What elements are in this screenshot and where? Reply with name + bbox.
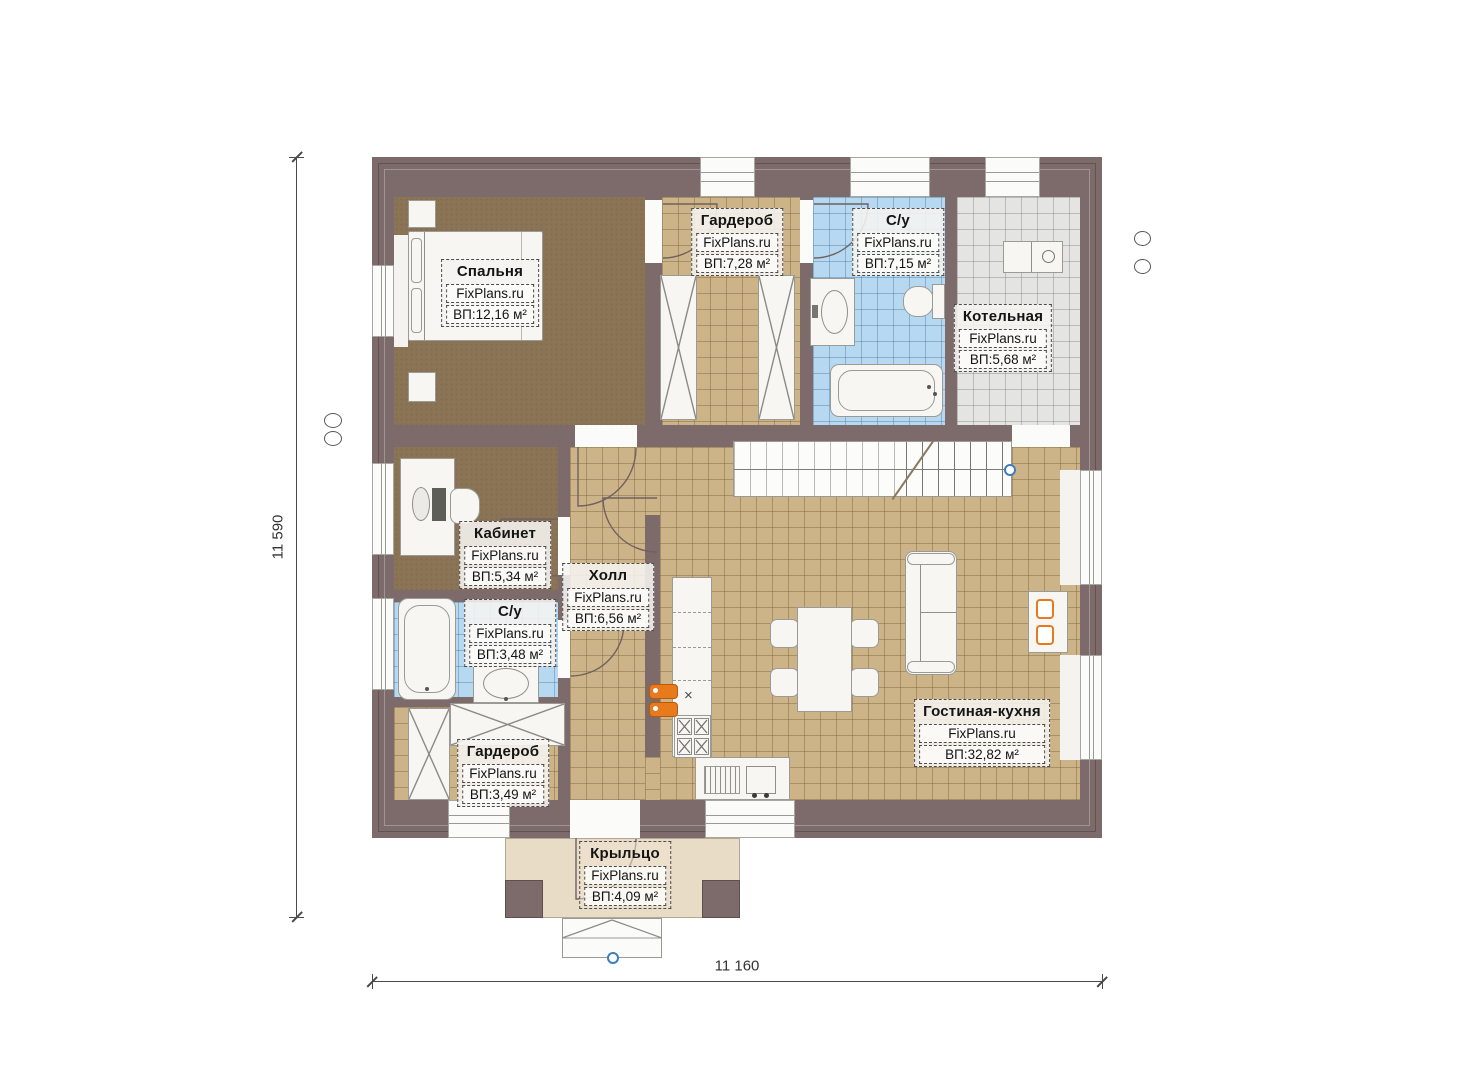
room-label-bedroom: Спальня FixPlans.ru ВП:12,16 м² (441, 259, 539, 327)
room-brand: FixPlans.ru (584, 866, 666, 885)
toilet-bowl (903, 286, 934, 317)
room-brand: FixPlans.ru (464, 546, 546, 565)
sill-living-right-1 (1060, 470, 1080, 585)
kitchen-sink-basin (746, 766, 776, 794)
window-left-1 (372, 265, 394, 337)
window-bottom-2 (705, 800, 795, 838)
room-label-office: Кабинет FixPlans.ru ВП:5,34 м² (459, 521, 551, 589)
room-label-boiler: Котельная FixPlans.ru ВП:5,68 м² (954, 304, 1052, 372)
marker-circle-left-2 (324, 431, 342, 446)
room-name: Гардероб (462, 742, 544, 762)
window-top-2 (850, 157, 930, 197)
dim-v-cap-top (289, 157, 304, 158)
switch-dot-1 (653, 688, 658, 693)
room-area: ВП:6,56 м² (567, 609, 649, 628)
entrance-opening (570, 800, 640, 838)
room-area: ВП:3,48 м² (469, 645, 551, 664)
window-left-3 (372, 598, 394, 690)
door-opening-bathroom-top (800, 200, 813, 263)
room-label-porch: Крыльцо FixPlans.ru ВП:4,09 м² (579, 841, 671, 909)
sink-basin-oval (821, 290, 848, 334)
bathtub-small-inner (404, 605, 450, 693)
kitchen-sink-symbol: × (684, 687, 693, 704)
room-brand: FixPlans.ru (857, 233, 939, 252)
fireplace-burner-2 (1036, 625, 1054, 645)
door-opening-boiler (1012, 425, 1070, 447)
stairs-marker-dot (1004, 464, 1016, 476)
room-label-bathroom-top: С/у FixPlans.ru ВП:7,15 м² (852, 208, 944, 276)
floor-plan-canvas: × 11 (0, 0, 1474, 1080)
room-label-bathroom-small: С/у FixPlans.ru ВП:3,48 м² (464, 599, 556, 667)
fireplace-unit (1028, 591, 1068, 653)
dining-chair-3 (850, 619, 879, 648)
sofa-armrest-top (907, 553, 955, 565)
stove-burner-4 (694, 738, 709, 755)
stove-burner-2 (694, 718, 709, 735)
sofa (905, 551, 957, 675)
fireplace-burner-1 (1036, 599, 1054, 619)
sill-living-right-2 (1060, 655, 1080, 760)
porch-marker-dot (607, 952, 619, 964)
room-brand: FixPlans.ru (446, 284, 534, 303)
desk-monitor (432, 488, 446, 521)
bed-headboard-line (424, 232, 425, 340)
pedestal-sink-dot (504, 697, 508, 701)
kitchen-faucet-dot-2 (764, 793, 769, 798)
sill-bedroom (394, 235, 408, 347)
stove-burner-1 (677, 718, 692, 735)
room-name: Гостиная-кухня (919, 702, 1045, 722)
room-name: Крыльцо (584, 844, 666, 864)
marker-circle-right-1 (1134, 231, 1151, 246)
wardrobe-x-3 (409, 709, 449, 799)
staircase (733, 441, 1012, 497)
window-right-1 (1080, 470, 1102, 585)
pedestal-sink (473, 663, 539, 703)
wardrobe-unit-1 (660, 275, 697, 420)
dim-h-cap-left (372, 974, 373, 989)
boiler-unit (1003, 241, 1063, 273)
bathtub-top-drain (927, 385, 931, 389)
door-opening-bedroom (575, 425, 637, 447)
dining-table (797, 607, 852, 712)
boiler-divider (1031, 242, 1032, 272)
wardrobe-x-2 (759, 276, 794, 419)
wardrobe-x-1 (661, 276, 696, 419)
dining-chair-2 (770, 668, 799, 697)
nightstand-top (408, 200, 436, 228)
room-name: Спальня (446, 262, 534, 282)
window-top-1 (700, 157, 755, 197)
bathtub-top-faucet (933, 392, 937, 396)
kitchen-faucet-dot-1 (752, 793, 757, 798)
dimension-label-horizontal: 11 160 (711, 958, 764, 975)
room-name: Кабинет (464, 524, 546, 544)
room-label-wardrobe-top: Гардероб FixPlans.ru ВП:7,28 м² (691, 208, 783, 276)
dining-chair-4 (850, 668, 879, 697)
dining-chair-1 (770, 619, 799, 648)
kitchen-divider-1 (673, 612, 711, 613)
bathtub-top (830, 364, 943, 417)
boiler-dial (1042, 250, 1055, 263)
stove-burner-3 (677, 738, 692, 755)
room-brand: FixPlans.ru (959, 329, 1047, 348)
dimension-label-vertical: 11 590 (270, 511, 287, 564)
room-label-living-kitchen: Гостиная-кухня FixPlans.ru ВП:32,82 м² (914, 699, 1050, 767)
room-label-hall: Холл FixPlans.ru ВП:6,56 м² (562, 563, 654, 631)
bed-pillow-1 (411, 238, 422, 283)
dim-v-cap-bottom (289, 917, 304, 918)
toilet-tank (932, 284, 945, 319)
window-left-2 (372, 463, 394, 555)
vanity (810, 278, 855, 346)
room-name: Холл (567, 566, 649, 586)
bathtub-small (398, 598, 456, 700)
window-right-2 (1080, 655, 1102, 760)
sofa-seat-divider (920, 612, 956, 613)
room-name: С/у (857, 211, 939, 231)
wall-switch-2 (649, 702, 678, 717)
room-brand: FixPlans.ru (462, 764, 544, 783)
room-area: ВП:5,34 м² (464, 567, 546, 586)
room-area: ВП:32,82 м² (919, 745, 1045, 764)
dimension-line-horizontal (372, 981, 1102, 982)
office-chair (450, 488, 480, 524)
room-brand: FixPlans.ru (696, 233, 778, 252)
door-opening-wardrobe-top (645, 200, 662, 263)
room-brand: FixPlans.ru (567, 588, 649, 607)
room-name: Гардероб (696, 211, 778, 231)
dim-h-cap-right (1102, 974, 1103, 989)
pedestal-sink-oval (483, 668, 529, 699)
bathtub-top-inner (838, 370, 935, 411)
switch-dot-2 (653, 706, 658, 711)
marker-circle-left-1 (324, 413, 342, 428)
sofa-back-line (920, 565, 921, 661)
kitchen-stove (674, 715, 711, 758)
kitchen-divider-2 (673, 647, 711, 648)
room-name: Котельная (959, 307, 1047, 327)
bathtub-small-faucet (425, 687, 429, 691)
room-area: ВП:5,68 м² (959, 350, 1047, 369)
kitchen-divider-3 (673, 680, 711, 681)
porch-pillar-left (505, 880, 543, 918)
kitchen-counter-bottom (695, 757, 790, 800)
room-area: ВП:12,16 м² (446, 305, 534, 324)
wardrobe-unit-3 (408, 708, 450, 800)
wardrobe-unit-2 (758, 275, 795, 420)
room-label-wardrobe-bottom: Гардероб FixPlans.ru ВП:3,49 м² (457, 739, 549, 807)
door-arc-hall-living (602, 497, 658, 553)
room-area: ВП:7,28 м² (696, 254, 778, 273)
dimension-line-vertical (296, 157, 297, 918)
room-brand: FixPlans.ru (919, 724, 1045, 743)
marker-circle-right-2 (1134, 259, 1151, 274)
porch-pillar-right (702, 880, 740, 918)
window-top-3 (985, 157, 1040, 197)
faucet-icon (812, 305, 818, 318)
room-area: ВП:7,15 м² (857, 254, 939, 273)
stairs-center-line (734, 469, 1013, 470)
desk-lamp-oval (412, 487, 430, 521)
room-area: ВП:3,49 м² (462, 785, 544, 804)
sofa-armrest-bottom (907, 661, 955, 673)
wall-switch-1 (649, 684, 678, 699)
bed-pillow-2 (411, 288, 422, 333)
room-area: ВП:4,09 м² (584, 887, 666, 906)
room-name: С/у (469, 602, 551, 622)
room-brand: FixPlans.ru (469, 624, 551, 643)
nightstand-bottom (408, 372, 436, 402)
sink-drainboard (704, 766, 740, 794)
